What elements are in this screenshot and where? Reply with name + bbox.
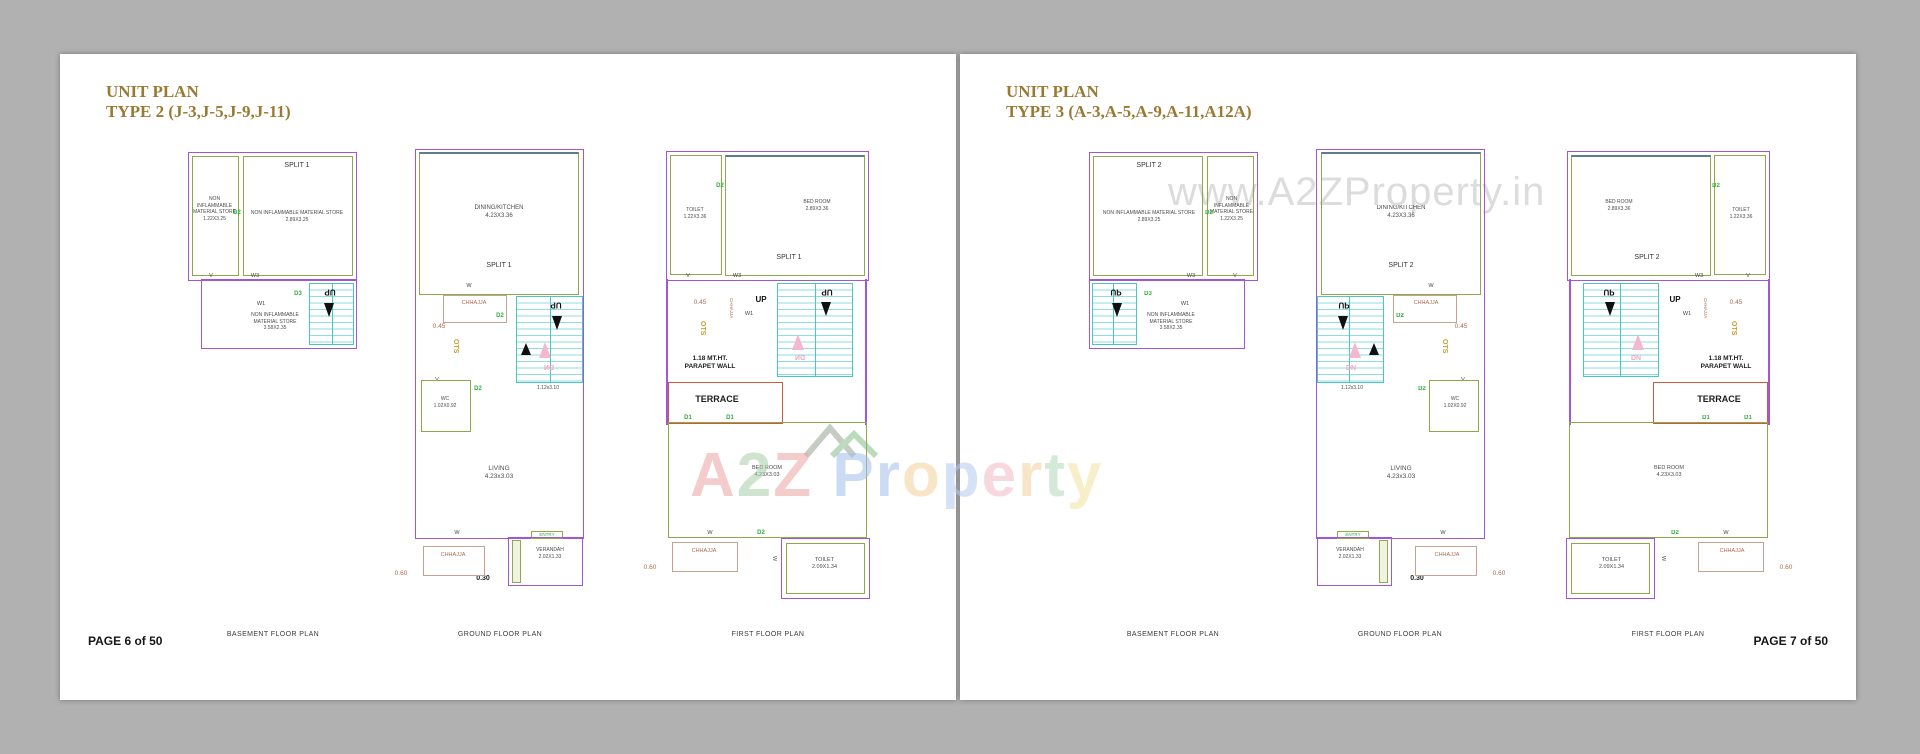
chhajja-label: CHHAJJA xyxy=(674,548,734,555)
brand-letter: t xyxy=(1044,440,1067,511)
room-label-dining: DINING/KITCHEN 4.23X3.36 xyxy=(1345,205,1457,221)
brand-letter xyxy=(813,440,832,511)
split-label: SPLIT 2 xyxy=(1370,261,1432,270)
room-label-store: NON INFLAMMABLE MATERIAL STORE 3.58X2.35 xyxy=(1140,312,1202,332)
stair-up-label: UP xyxy=(1325,299,1363,309)
down-arrow-icon xyxy=(1338,316,1348,330)
stair-dn-label: DN xyxy=(784,354,816,363)
basement-floor-plan: NON INFLAMMABLE MATERIAL STORE 1.22X3.25… xyxy=(1088,152,1258,352)
window-label-w: W xyxy=(1421,283,1441,290)
pink-up-arrow-icon xyxy=(1349,342,1361,358)
terrace-label: TERRACE xyxy=(674,394,760,406)
up-arrow-icon xyxy=(521,343,531,355)
brand-letter: P xyxy=(832,440,875,511)
dimension-label-060: 0.60 xyxy=(1487,570,1511,578)
caption-ground: GROUND FLOOR PLAN xyxy=(420,630,580,639)
side-wall xyxy=(1768,279,1770,425)
ground-floor-plan: DINING/KITCHEN 4.23X3.36 SPLIT 1 W CHHAJ… xyxy=(415,149,585,594)
room-label-living: LIVING 4.23x3.03 xyxy=(1363,465,1439,482)
chhajja-label: CHHAJJA xyxy=(728,287,734,329)
room-label-store: NON INFLAMMABLE MATERIAL STORE 1.22X3.25 xyxy=(191,196,238,222)
window-label-w: W xyxy=(447,530,467,537)
verandah-step xyxy=(1379,540,1388,583)
split-label: SPLIT 1 xyxy=(468,261,530,270)
window-label-w: W xyxy=(1433,530,1453,537)
caption-basement: BASEMENT FLOOR PLAN xyxy=(1093,630,1253,639)
ground-floor-plan: DINING/KITCHEN 4.23X3.36 SPLIT 2 W CHHAJ… xyxy=(1315,149,1485,594)
window-label-w: W xyxy=(459,283,479,290)
room-label-toilet: TOILET 1.22X3.36 xyxy=(670,207,720,220)
room-label-store: NON INFLAMMABLE MATERIAL STORE 2.89X3.25 xyxy=(1098,210,1200,223)
caption-ground: GROUND FLOOR PLAN xyxy=(1320,630,1480,639)
window-label-v: V xyxy=(1740,273,1756,280)
pink-up-arrow-icon xyxy=(539,342,551,358)
door-label-d2: D2 xyxy=(1393,313,1407,321)
terrace-label: TERRACE xyxy=(1676,394,1762,406)
brand-letter: p xyxy=(942,440,982,511)
chhajja-label: CHHAJJA xyxy=(425,552,481,559)
stair-dn-label: DN xyxy=(1335,364,1367,373)
dimension-label-045: 0.45 xyxy=(1722,299,1750,307)
dimension-label-060: 0.60 xyxy=(389,570,413,578)
page-right: www.A2ZProperty.in UNIT PLAN TYPE 3 (A-3… xyxy=(960,54,1856,700)
split-label: SPLIT 2 xyxy=(1610,253,1684,262)
bedroom-main xyxy=(1569,422,1768,538)
room-label-verandah: VERANDAH 2.02X1.33 xyxy=(1321,547,1379,560)
brand-letter: A xyxy=(690,440,737,511)
dimension-label-045: 0.45 xyxy=(1447,323,1475,331)
chhajja-outline xyxy=(1415,546,1477,576)
stair-dn-label: DN xyxy=(533,364,565,373)
split-label: SPLIT 2 xyxy=(1100,161,1198,170)
door-label-d2: D2 xyxy=(471,386,485,394)
stair-dimension: 1.12x3.10 xyxy=(1321,385,1383,392)
window-label-w: W xyxy=(1716,530,1736,537)
down-arrow-icon xyxy=(552,316,562,330)
brand-letter: r xyxy=(876,440,902,511)
brand-letter: o xyxy=(902,440,942,511)
page-left: UNIT PLAN TYPE 2 (J-3,J-5,J-9,J-11) NON … xyxy=(60,54,956,700)
page-title-line2: TYPE 2 (J-3,J-5,J-9,J-11) xyxy=(106,102,291,122)
window-label-w: W xyxy=(1659,549,1666,569)
ots-label: OTS xyxy=(698,315,707,341)
chhajja-label: CHHAJJA xyxy=(445,300,503,307)
watermark-brand: A2Z Property xyxy=(690,440,1103,511)
chhajja-label: CHHAJJA xyxy=(1702,548,1762,555)
room-label-store: NON INFLAMMABLE MATERIAL STORE 2.89X3.25 xyxy=(246,210,348,223)
stair-up-label: UP xyxy=(1662,295,1688,305)
document-spread: UNIT PLAN TYPE 2 (J-3,J-5,J-9,J-11) NON … xyxy=(60,54,1856,700)
room-label-verandah: VERANDAH 2.02X1.33 xyxy=(521,547,579,560)
page-footer: PAGE 7 of 50 xyxy=(1608,634,1828,650)
room-label-bedroom: BED ROOM 4.23X3.03 xyxy=(1632,465,1706,479)
page-title-line2: TYPE 3 (A-3,A-5,A-9,A-11,A12A) xyxy=(1006,102,1252,122)
down-arrow-icon xyxy=(324,303,334,317)
room-label-toilet: TOILET 2.09X1.34 xyxy=(1575,557,1648,571)
ots-label: OTS xyxy=(1729,315,1738,341)
page-title-line1: UNIT PLAN xyxy=(106,82,199,102)
split-label: SPLIT 1 xyxy=(752,253,826,262)
door-label-d3: D3 xyxy=(290,291,306,299)
stair-up-label: UP xyxy=(1098,286,1134,296)
up-arrow-icon xyxy=(1369,343,1379,355)
stair-dn-label: DN xyxy=(1620,354,1652,363)
brand-letter: Z xyxy=(773,440,813,511)
door-label-d2: D2 xyxy=(1415,386,1429,394)
stair-up-label: UP xyxy=(312,286,348,296)
dimension-label-060: 0.60 xyxy=(1774,564,1798,572)
window-label-w1: W1 xyxy=(1176,301,1194,308)
stair-up-label: UP xyxy=(748,295,774,305)
chhajja-label: CHHAJJA xyxy=(1702,287,1708,329)
dining-kitchen-room xyxy=(419,152,579,295)
window-label-v: V xyxy=(680,273,696,280)
page-title-line1: UNIT PLAN xyxy=(1006,82,1099,102)
parapet-label: 1.18 MT.HT. PARAPET WALL xyxy=(668,355,752,372)
door-label-d2: D2 xyxy=(1202,210,1216,218)
side-wall xyxy=(865,279,867,425)
pink-up-arrow-icon xyxy=(1632,334,1644,350)
room-label-wc: WC 1.02X0.92 xyxy=(423,396,467,409)
down-arrow-icon xyxy=(821,302,831,316)
dining-kitchen-room xyxy=(1321,152,1481,295)
room-label-toilet: TOILET 1.22X3.36 xyxy=(1716,207,1766,220)
down-arrow-icon xyxy=(1605,302,1615,316)
stair-up-label: UP xyxy=(808,286,846,296)
ots-label: OTS xyxy=(1440,333,1449,359)
chhajja-outline xyxy=(1698,542,1764,572)
door-label-d2: D2 xyxy=(1709,183,1723,191)
caption-first: FIRST FLOOR PLAN xyxy=(668,630,868,639)
verandah-step xyxy=(512,540,521,583)
room-label-bedroom: BED ROOM 2.89X3.36 xyxy=(772,199,862,212)
split-label: SPLIT 1 xyxy=(248,161,346,170)
brand-letter: r xyxy=(1018,440,1044,511)
window-label-w1: W1 xyxy=(1678,311,1696,318)
window-label-w3: W3 xyxy=(1688,273,1710,280)
door-label-d2: D2 xyxy=(230,210,244,218)
basement-floor-plan: NON INFLAMMABLE MATERIAL STORE 1.22X3.25… xyxy=(188,152,358,352)
room-label-toilet: TOILET 2.09X1.34 xyxy=(788,557,861,571)
window-label-w: W xyxy=(700,530,720,537)
window-label-w3: W3 xyxy=(726,273,748,280)
page-footer: PAGE 6 of 50 xyxy=(88,634,308,650)
dimension-label-045: 0.45 xyxy=(425,323,453,331)
dimension-label-060: 0.60 xyxy=(638,564,662,572)
chhajja-outline xyxy=(672,542,738,572)
brand-letter: y xyxy=(1067,440,1103,511)
room-label-store: NON INFLAMMABLE MATERIAL STORE 1.22X3.25 xyxy=(1208,196,1255,222)
window-label-w: W xyxy=(770,549,777,569)
window-label-w1: W1 xyxy=(740,311,758,318)
room-label-store: NON INFLAMMABLE MATERIAL STORE 3.58X2.35 xyxy=(244,312,306,332)
window-label-w1: W1 xyxy=(252,301,270,308)
room-label-living: LIVING 4.23x3.03 xyxy=(461,465,537,482)
first-floor-plan: TOILET 1.22X3.36 D2 BED ROOM 2.89X3.36 S… xyxy=(666,151,870,604)
brand-letter: 2 xyxy=(737,440,773,511)
room-label-dining: DINING/KITCHEN 4.23X3.36 xyxy=(443,205,555,221)
side-wall xyxy=(1569,279,1571,425)
first-floor-plan: TOILET 1.22X3.36 D2 BED ROOM 2.89X3.36 S… xyxy=(1566,151,1770,604)
stair-up-label: UP xyxy=(1590,286,1628,296)
down-arrow-icon xyxy=(1112,303,1122,317)
parapet-label: 1.18 MT.HT. PARAPET WALL xyxy=(1684,355,1768,372)
stair-dimension: 1.12x3.10 xyxy=(517,385,579,392)
door-label-d3: D3 xyxy=(1140,291,1156,299)
room-label-bedroom: BED ROOM 2.89X3.36 xyxy=(1574,199,1664,212)
door-label-d2: D2 xyxy=(1668,530,1682,538)
stair-up-label: UP xyxy=(537,299,575,309)
chhajja-outline xyxy=(423,546,485,576)
door-label-d2: D2 xyxy=(754,530,768,538)
chhajja-label: CHHAJJA xyxy=(1397,300,1455,307)
brand-letter: e xyxy=(982,440,1018,511)
dimension-label-045: 0.45 xyxy=(686,299,714,307)
ots-label: OTS xyxy=(451,333,460,359)
door-label-d2: D2 xyxy=(493,313,507,321)
pink-up-arrow-icon xyxy=(792,334,804,350)
chhajja-label: CHHAJJA xyxy=(1419,552,1475,559)
room-label-wc: WC 1.02X0.92 xyxy=(1433,396,1477,409)
